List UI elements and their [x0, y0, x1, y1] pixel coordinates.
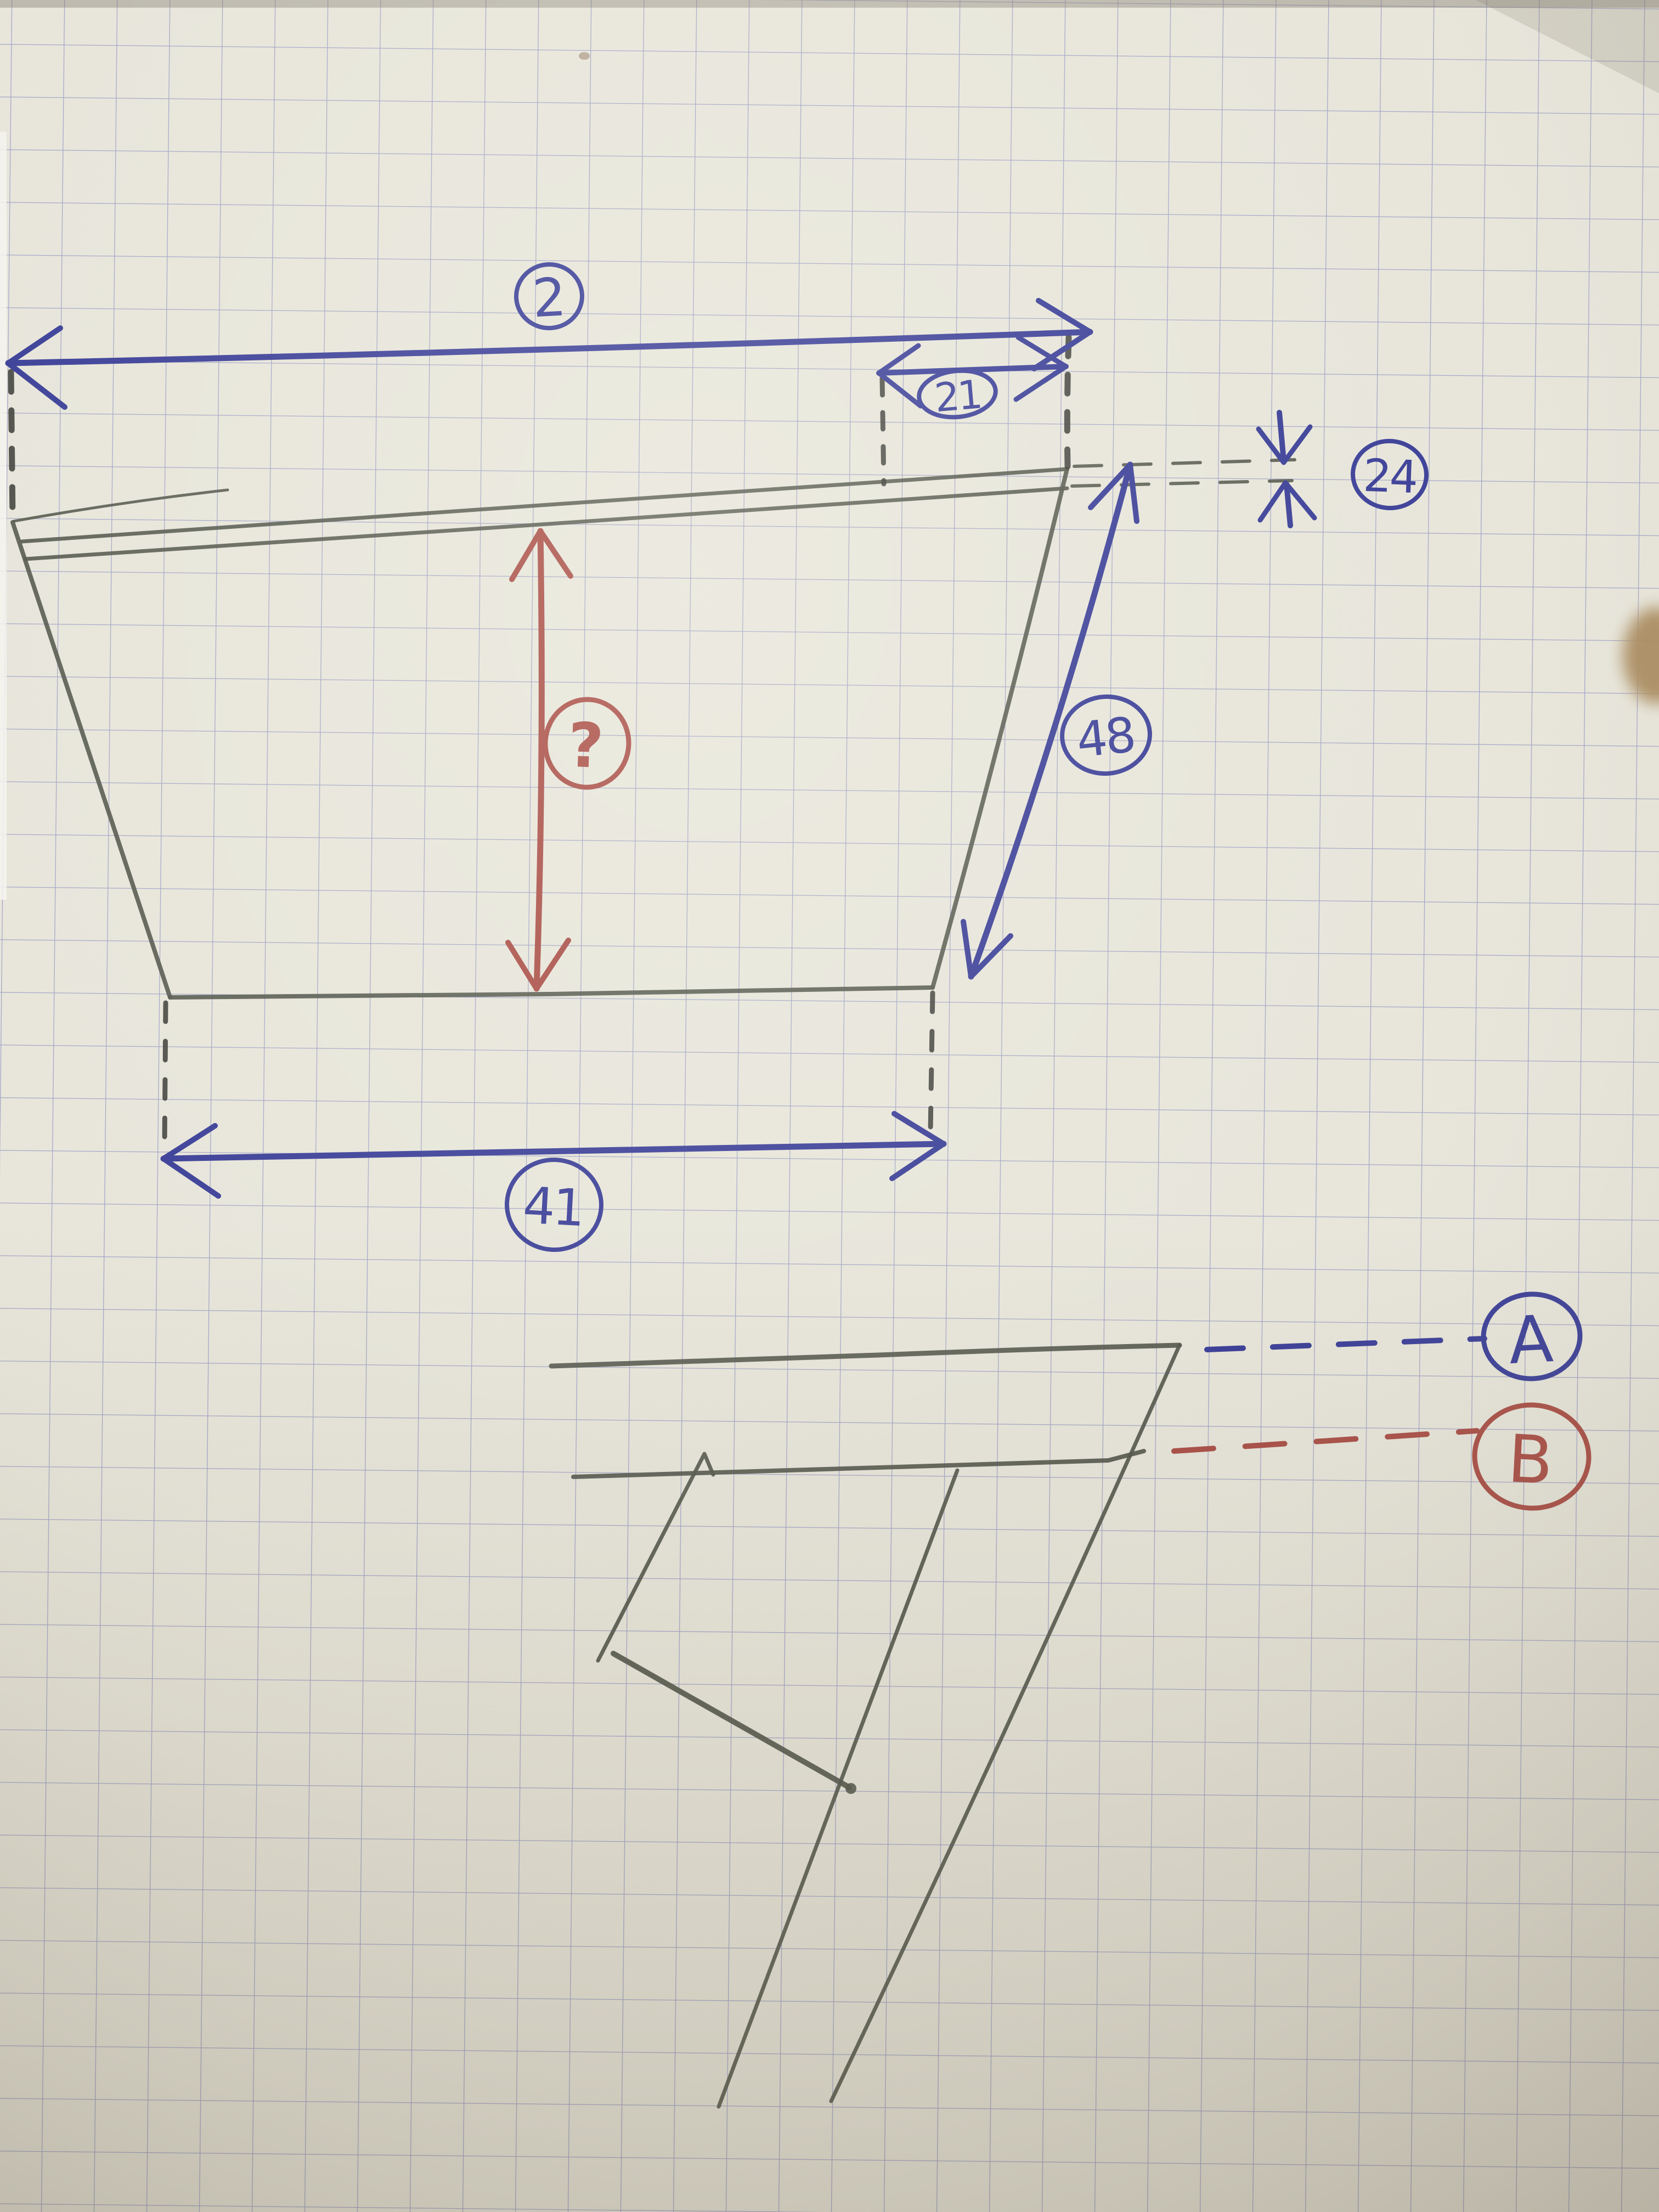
photo-bottom-shade — [0, 0, 1659, 2212]
graph-paper-sketch: 2 21 24 48 41 ? — [0, 0, 1659, 2212]
photo-of-sketch: 2 21 24 48 41 ? — [0, 0, 1659, 2212]
